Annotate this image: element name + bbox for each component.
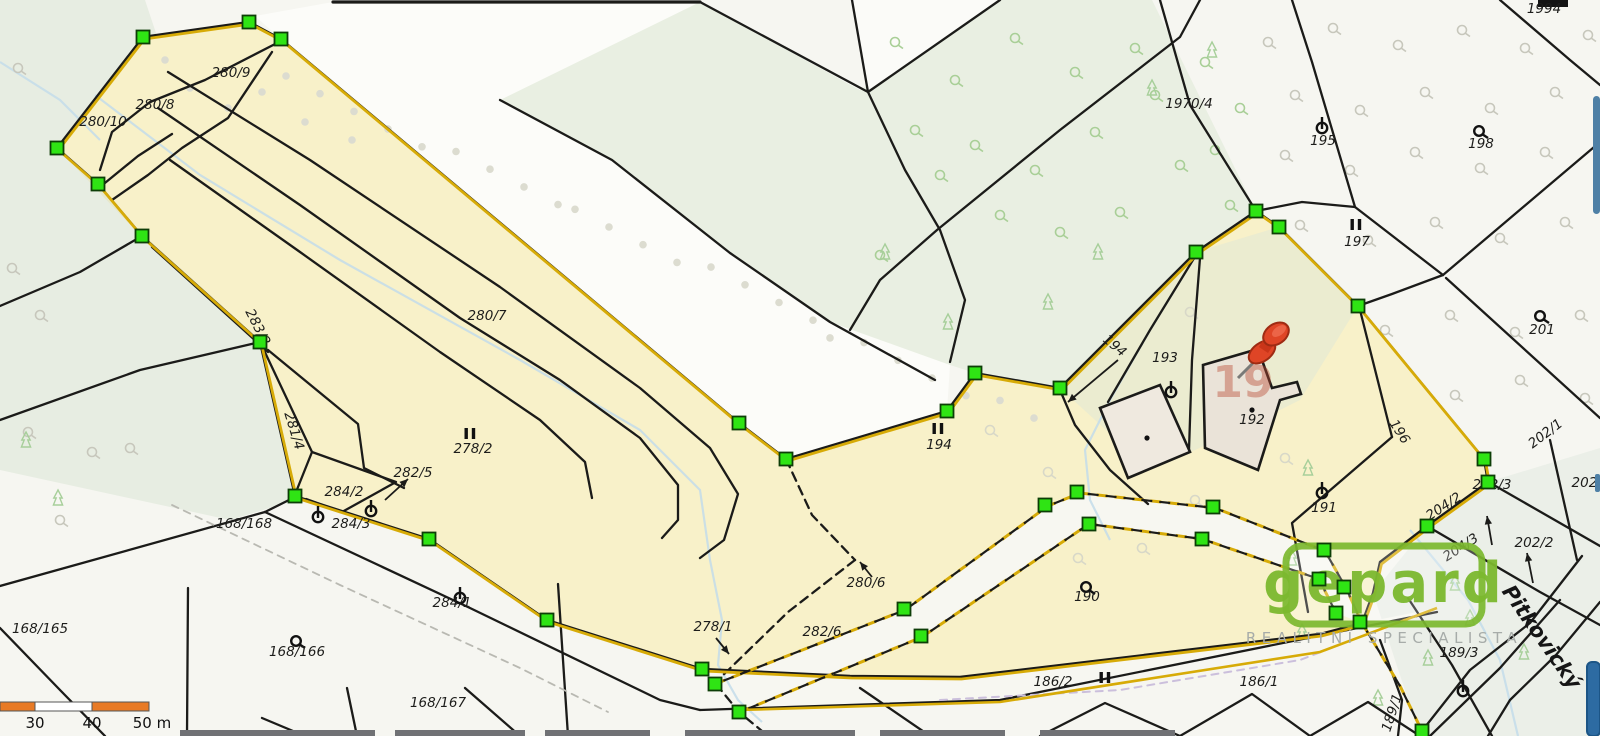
parcel-label: 186/2 (1034, 674, 1073, 690)
parcel-label: 168/168 (216, 516, 272, 532)
shrub-icon (1516, 376, 1529, 387)
parcel-label: 284/1 (433, 595, 472, 611)
shrub-icon (1291, 91, 1304, 102)
parcel-label: 202/1 (1525, 416, 1566, 452)
orchard-symbol-icon (1317, 117, 1327, 133)
house-number-label: 19 (1212, 357, 1273, 408)
selection-vertex-handle[interactable] (1421, 520, 1434, 533)
parcel-label: 280/9 (212, 65, 251, 81)
selection-vertex-handle[interactable] (1071, 486, 1084, 499)
parcel-label: 191 (1311, 500, 1337, 516)
selection-vertex-handle[interactable] (1196, 533, 1209, 546)
scale-bar: 304050 m (0, 702, 171, 732)
shrub-icon (1356, 106, 1369, 117)
selection-vertex-handle[interactable] (1083, 518, 1096, 531)
selection-vertex-handle[interactable] (1039, 499, 1052, 512)
gepard-logo-text: gepard (1263, 551, 1505, 616)
shrub-icon (1411, 148, 1424, 159)
shrub-icon (1446, 311, 1459, 322)
parcel-label: 192 (1239, 412, 1265, 428)
selection-vertex-handle[interactable] (289, 490, 302, 503)
selection-vertex-handle[interactable] (275, 33, 288, 46)
shrub-icon (1431, 218, 1444, 229)
scale-label: 50 m (133, 714, 171, 732)
shrub-icon (1496, 234, 1509, 245)
selection-vertex-handle[interactable] (136, 230, 149, 243)
cadastral-map[interactable]: 280/9280/8280/10283/2281/4280/7278/2282/… (0, 0, 1600, 736)
selection-vertex-handle[interactable] (243, 16, 256, 29)
shrub-icon (1421, 88, 1434, 99)
scale-label: 40 (82, 714, 101, 732)
selection-vertex-handle[interactable] (541, 614, 554, 627)
parcel-label: 282/6 (803, 624, 842, 640)
parcel-label: 280/8 (136, 97, 175, 113)
parcel-label: 189/3 (1440, 645, 1479, 661)
parcel-label: 198 (1468, 136, 1494, 152)
parcel-label: 197 (1344, 234, 1370, 250)
parcel-label: 280/6 (847, 575, 886, 591)
parcel-label: 1970/4 (1165, 96, 1213, 112)
gepard-logo-subtitle: REALITNÍ SPECIALISTA (1246, 628, 1522, 647)
shrub-icon (1451, 391, 1464, 402)
conifer-icon (53, 490, 62, 505)
parcel-label: 190 (1074, 589, 1100, 605)
selection-vertex-handle[interactable] (1273, 221, 1286, 234)
map-edge-marker[interactable] (1595, 474, 1600, 492)
parcel-label: 284/2 (325, 484, 364, 500)
shrub-icon (1264, 38, 1277, 49)
parcel-label: 282/5 (394, 465, 433, 481)
selection-vertex-handle[interactable] (1478, 453, 1491, 466)
orchard-symbol-icon (313, 506, 323, 522)
shrub-icon (1521, 44, 1534, 55)
shrub-icon (1541, 148, 1554, 159)
selection-vertex-handle[interactable] (1338, 581, 1351, 594)
parcel-label: 278/1 (694, 619, 733, 635)
selection-vertex-handle[interactable] (733, 706, 746, 719)
shrub-icon (1394, 41, 1407, 52)
map-edge-marker[interactable] (1587, 662, 1600, 736)
selection-vertex-handle[interactable] (780, 453, 793, 466)
parcel-label: 280/7 (468, 308, 507, 324)
shrub-icon (1584, 31, 1597, 42)
parcel-label: 168/167 (410, 695, 466, 711)
selection-vertex-handle[interactable] (1416, 725, 1429, 736)
selection-vertex-handle[interactable] (898, 603, 911, 616)
shrub-icon (1346, 166, 1359, 177)
shrub-icon (1486, 104, 1499, 115)
selection-vertex-handle[interactable] (941, 405, 954, 418)
selection-vertex-handle[interactable] (1313, 573, 1326, 586)
selection-vertex-handle[interactable] (1190, 246, 1203, 259)
selection-vertex-handle[interactable] (696, 663, 709, 676)
conifer-icon (1373, 690, 1382, 705)
scale-label: 30 (25, 714, 44, 732)
selection-vertex-handle[interactable] (1250, 205, 1263, 218)
parcel-label: 201 (1529, 322, 1555, 338)
parcel-label: 168/166 (269, 644, 325, 660)
selection-vertex-handle[interactable] (254, 336, 267, 349)
shrub-icon (1329, 24, 1342, 35)
shrub-icon (1576, 311, 1589, 322)
selection-vertex-handle[interactable] (1318, 544, 1331, 557)
conifer-icon (1207, 42, 1216, 57)
parcel-label: 193 (1152, 350, 1178, 366)
shrub-icon (1281, 151, 1294, 162)
map-edge-marker[interactable] (1593, 96, 1600, 214)
parcel-label: 202/2 (1515, 535, 1554, 551)
shrub-icon (1476, 164, 1489, 175)
selection-vertex-handle[interactable] (92, 178, 105, 191)
building-dot-icon (1144, 435, 1149, 440)
shrub-icon (1236, 104, 1249, 115)
shrub-icon (56, 516, 69, 527)
selection-vertex-handle[interactable] (423, 533, 436, 546)
selection-vertex-handle[interactable] (137, 31, 150, 44)
selection-vertex-handle[interactable] (1330, 607, 1343, 620)
parcel-label: 280/10 (79, 114, 127, 130)
selection-vertex-handle[interactable] (733, 417, 746, 430)
selection-vertex-handle[interactable] (1207, 501, 1220, 514)
parcel-label: 1994 (1527, 1, 1561, 17)
selection-vertex-handle[interactable] (51, 142, 64, 155)
parcel-label: 194 (926, 437, 952, 453)
shrub-icon (1296, 221, 1309, 232)
gepard-watermark: gepardREALITNÍ SPECIALISTA (1246, 546, 1522, 647)
parcel-label: 186/1 (1240, 674, 1279, 690)
map-canvas[interactable]: 280/9280/8280/10283/2281/4280/7278/2282/… (0, 0, 1600, 736)
selection-vertex-handle[interactable] (1352, 300, 1365, 313)
shrub-icon (1201, 58, 1214, 69)
shrub-icon (1561, 218, 1574, 229)
selection-vertex-handle[interactable] (709, 678, 722, 691)
meadow-symbol-icon (1351, 219, 1362, 230)
selection-vertex-handle[interactable] (915, 630, 928, 643)
parcel-label: 195 (1310, 133, 1336, 149)
shrub-icon (1551, 88, 1564, 99)
selection-vertex-handle[interactable] (1482, 476, 1495, 489)
selection-vertex-handle[interactable] (1054, 382, 1067, 395)
parcel-label: 168/165 (12, 621, 68, 637)
parcel-label: 284/3 (332, 516, 371, 532)
shrub-icon (1458, 26, 1471, 37)
parcel-label: 278/2 (454, 441, 493, 457)
selection-vertex-handle[interactable] (1354, 616, 1367, 629)
selection-vertex-handle[interactable] (969, 367, 982, 380)
